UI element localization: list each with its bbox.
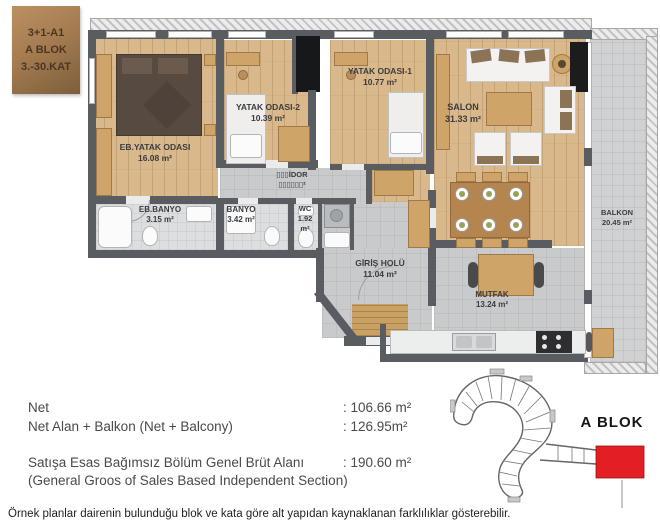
shaft <box>296 36 320 92</box>
room-balkon-floor <box>590 40 646 362</box>
washer-door <box>330 209 343 222</box>
net-label: Net <box>28 400 49 415</box>
dining-chair <box>456 238 476 248</box>
window-top-6 <box>508 31 564 38</box>
room-label-mutfak: MUTFAK 13.24 m² <box>450 290 534 311</box>
wardrobe <box>278 126 310 162</box>
cabinet <box>324 232 350 248</box>
wall-niche-hall <box>350 200 354 250</box>
armchair-pillow <box>560 112 572 130</box>
window-top-4 <box>334 31 374 38</box>
floor-plan-page: 3+1-A1 A BLOK 3.-30.KAT <box>0 0 660 530</box>
toilet <box>264 226 280 246</box>
exterior-hatch-right <box>646 36 658 374</box>
unit-type: 3+1-A1 <box>28 27 64 39</box>
wall-mutfak-left <box>380 324 386 358</box>
armchair-pillow <box>513 156 539 164</box>
highlighted-unit <box>596 446 644 478</box>
building-outline <box>454 376 552 498</box>
net-balcony-value: : 126.95m² <box>343 419 408 434</box>
sink-bowl <box>456 336 472 348</box>
nightstand <box>204 124 216 136</box>
armchair-pillow <box>477 156 503 164</box>
sink-bowl <box>476 336 492 348</box>
hall-upper-floor <box>352 202 412 250</box>
nightstand <box>204 54 216 66</box>
net-balcony-label: Net Alan + Balkon (Net + Balcony) <box>28 419 233 434</box>
net-value: : 106.66 m² <box>343 400 411 415</box>
pillow <box>230 134 262 158</box>
room-label-eb-yatak: EB.YATAK ODASI 16.08 m² <box>92 142 218 164</box>
room-label-yatak2: YATAK ODASI-2 10.39 m² <box>218 102 318 124</box>
dining-chair <box>482 238 502 248</box>
dining-chair <box>508 172 528 182</box>
place-setting <box>455 187 469 201</box>
room-label-koridor: ▯▯▯İDOR ▯▯▯▯▯▯² <box>240 170 344 190</box>
key-plan-block-label: A BLOK <box>562 414 660 431</box>
entry-door-gap <box>366 337 392 345</box>
room-label-eb-banyo: EB.BANYO 3.15 m² <box>110 205 210 226</box>
burner <box>542 344 547 349</box>
kitchen-chair <box>468 262 478 288</box>
window-left <box>89 58 95 104</box>
place-setting <box>482 218 496 232</box>
room-label-salon: SALON 31.33 m² <box>432 102 494 125</box>
gross-value: : 190.60 m² <box>343 455 411 470</box>
pillow <box>122 58 152 74</box>
desk <box>226 52 260 66</box>
place-setting <box>509 187 523 201</box>
wall-ebyatak-ebbanyo <box>92 196 218 204</box>
toilet <box>142 226 158 246</box>
stool <box>238 70 248 80</box>
window-top-1 <box>106 31 156 38</box>
place-setting <box>509 218 523 232</box>
pillow <box>390 132 422 154</box>
window-top-2 <box>168 31 212 38</box>
room-label-balkon: BALKON 20.45 m² <box>590 208 644 228</box>
key-plan <box>450 368 660 508</box>
entry-wardrobe <box>408 200 430 248</box>
wardrobe <box>374 170 414 196</box>
wall-corridor-right <box>366 164 372 204</box>
room-label-banyo: BANYO 3.42 m² <box>206 205 276 226</box>
sofa-pillow <box>498 49 519 63</box>
arm-bottom <box>540 460 596 464</box>
gross-label-en: (General Groos of Sales Based Independen… <box>28 473 348 488</box>
wardrobe <box>96 54 112 118</box>
kitchen-chair <box>534 262 544 288</box>
arm-top <box>546 444 596 450</box>
balcony-mullion-2 <box>584 290 592 304</box>
balcony-table <box>592 328 614 358</box>
room-label-yatak1: YATAK ODASI-1 10.77 m² <box>330 66 430 88</box>
wall-mutfak-bottom <box>380 354 588 362</box>
plant <box>558 60 566 68</box>
burner <box>556 344 561 349</box>
pillow <box>158 58 188 74</box>
stove <box>536 331 572 353</box>
desk <box>334 52 368 66</box>
door-gap-banyo <box>238 198 258 204</box>
window-top-5 <box>446 31 502 38</box>
place-setting <box>455 218 469 232</box>
burner <box>542 335 547 340</box>
place-setting <box>482 187 496 201</box>
armchair-pillow <box>560 90 572 108</box>
burner <box>556 335 561 340</box>
unit-badge: 3+1-A1 A BLOK 3.-30.KAT <box>12 6 80 94</box>
block-name: A BLOK <box>25 44 67 56</box>
sofa-pillow <box>524 49 545 63</box>
floor-range: 3.-30.KAT <box>21 61 71 73</box>
gross-label: Satışa Esas Bağımsız Bölüm Genel Brüt Al… <box>28 455 304 470</box>
balcony-mullion-1 <box>584 148 592 166</box>
room-label-wc: WC 1.92 m² <box>288 204 322 233</box>
dining-chair <box>482 172 502 182</box>
dining-chair <box>508 238 528 248</box>
tv-panel <box>570 42 588 92</box>
door-gap-yatak1 <box>342 164 364 170</box>
window-top-3 <box>228 31 266 38</box>
disclaimer-text: Örnek planlar dairenin bulunduğu blok ve… <box>8 508 654 520</box>
dining-chair <box>456 172 476 182</box>
balcony-chair <box>586 332 592 352</box>
room-label-giris-holu: GİRİŞ HOLÜ 11.04 m² <box>330 258 430 280</box>
